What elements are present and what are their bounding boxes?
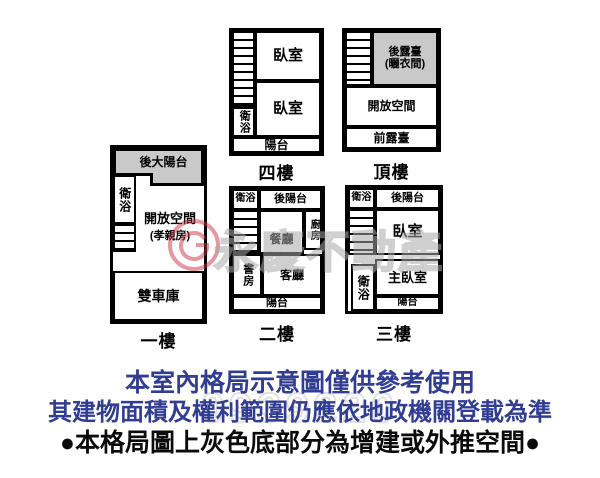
note-line-1: 本室內格局示意圖僅供參考使用: [0, 369, 600, 398]
floor-roof-plan: 後露臺 (曬衣間) 開放空間 前露臺: [342, 28, 441, 152]
room-back-balcony: 後陽台: [259, 189, 322, 210]
floor-label-3f: 三樓: [345, 320, 443, 345]
brand-watermark: 永慶不動產: [214, 216, 444, 280]
room-label: 衛浴: [238, 110, 250, 134]
room-label: 陽台: [264, 139, 288, 152]
room-bathroom: 衛浴: [113, 175, 136, 224]
room-label: 前露臺: [373, 132, 409, 145]
room-label: 臥室: [273, 48, 303, 64]
room-bedroom-2: 臥室: [255, 81, 321, 137]
floorplan-canvas: 臥室 臥室 衛浴 陽台 四樓 後露臺 (曬衣間) 開放空間 前露臺 頂樓: [0, 0, 600, 478]
room-bathroom: 衛浴: [232, 189, 259, 210]
room-label: 後陽台: [274, 194, 307, 206]
room-label: 衛浴: [352, 193, 372, 204]
room-garage: 雙車庫: [113, 271, 204, 321]
note-line-2: 其建物面積及權利範圍仍應依地政機關登載為準: [0, 398, 600, 427]
room-label: 後大陽台: [139, 156, 187, 169]
room-label: 後露臺: [389, 47, 422, 59]
stairs-icon: [232, 31, 255, 107]
floor-label-2f: 二樓: [229, 320, 325, 345]
room-label: 開放空間: [367, 100, 415, 113]
floor-label-1f: 一樓: [110, 327, 207, 352]
room-front-terrace: 前露臺: [345, 127, 438, 149]
room-bathroom: 衛浴: [232, 107, 255, 137]
note-line-3: ●本格局圖上灰色底部分為增建或外推空間●: [0, 427, 600, 459]
disclaimer-notes: 本室內格局示意圖僅供參考使用 其建物面積及權利範圍仍應依地政機關登載為準 ●本格…: [0, 369, 600, 459]
room-sublabel: (曬衣間): [385, 59, 425, 71]
floor-label-4f: 四樓: [229, 159, 324, 184]
stairs-icon: [345, 31, 372, 86]
room-balcony: 陽台: [375, 296, 440, 311]
room-open-space: 開放空間: [345, 86, 438, 127]
room-label: 臥室: [273, 101, 303, 117]
room-bathroom-top: 衛浴: [348, 188, 375, 209]
room-label: 衛浴: [236, 194, 256, 205]
floor-label-roof: 頂樓: [342, 158, 441, 183]
room-bedroom-1: 臥室: [255, 31, 321, 81]
room-label: 衛浴: [118, 187, 131, 213]
room-balcony: 陽台: [232, 137, 321, 153]
room-label: 陽台: [398, 298, 418, 309]
room-label: 陽台: [266, 298, 288, 310]
room-balcony: 陽台: [232, 296, 322, 311]
floor-4f-plan: 臥室 臥室 衛浴 陽台: [229, 28, 324, 156]
room-label: 後陽台: [391, 193, 424, 205]
room-back-balcony: 後陽台: [375, 188, 440, 209]
room-label: 雙車庫: [138, 289, 180, 304]
room-back-big-balcony: 後大陽台: [113, 150, 204, 174]
stairs-icon: [113, 224, 136, 252]
room-back-terrace: 後露臺 (曬衣間): [372, 31, 438, 86]
